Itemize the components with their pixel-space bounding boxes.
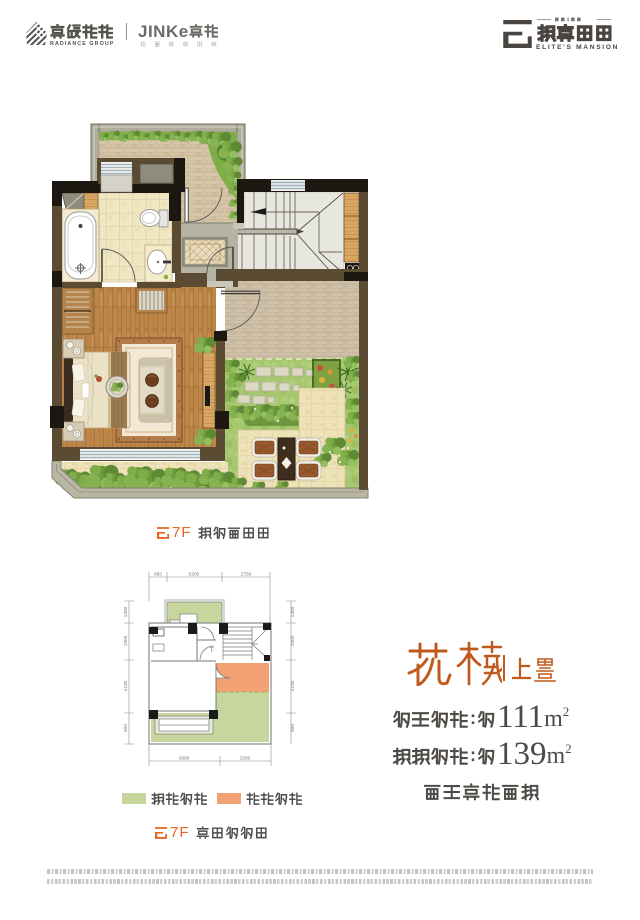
svg-text:1900: 1900 bbox=[290, 635, 296, 646]
svg-text:T: T bbox=[210, 648, 214, 654]
svg-text:850: 850 bbox=[154, 572, 162, 578]
svg-text:4100: 4100 bbox=[290, 680, 296, 691]
svg-text:1300: 1300 bbox=[290, 606, 296, 617]
svg-text:2750: 2750 bbox=[241, 572, 252, 578]
svg-text:600: 600 bbox=[123, 724, 129, 732]
svg-text:1900: 1900 bbox=[123, 635, 129, 646]
svg-text:5200: 5200 bbox=[189, 572, 200, 578]
svg-text:600: 600 bbox=[290, 724, 296, 732]
svg-text:3600: 3600 bbox=[179, 756, 190, 762]
svg-text:3200: 3200 bbox=[240, 756, 251, 762]
svg-text:4100: 4100 bbox=[123, 680, 129, 691]
svg-text:1300: 1300 bbox=[123, 606, 129, 617]
